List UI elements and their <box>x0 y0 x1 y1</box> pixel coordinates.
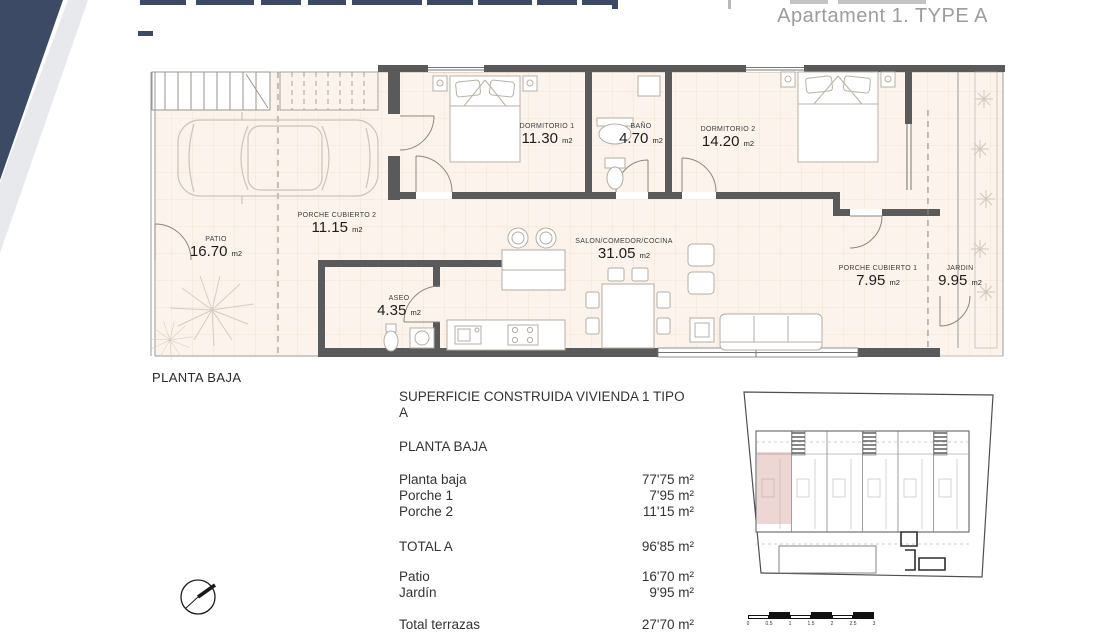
scale-label: 2.5 <box>850 621 857 627</box>
summary-row: Jardín9'95 m² <box>399 585 694 601</box>
terrace-rows: Patio16'70 m² Jardín9'95 m² <box>399 569 694 601</box>
summary-row: Planta baja77'75 m² <box>399 472 694 488</box>
plan-caption: PLANTA BAJA <box>152 370 241 385</box>
scale-segment <box>748 615 769 619</box>
scale-segment <box>769 612 790 619</box>
scale-label: 3 <box>873 621 876 627</box>
summary-rows: Planta baja77'75 m² Porche 17'95 m² Porc… <box>399 472 694 520</box>
floor-plan <box>150 64 1005 364</box>
summary-title: SUPERFICIE CONSTRUIDA VIVIENDA 1 TIPO A <box>399 389 694 421</box>
scale-segment <box>832 615 853 619</box>
summary-row: Porche 211'15 m² <box>399 504 694 520</box>
scale-segment <box>811 612 832 619</box>
summary-row: Patio16'70 m² <box>399 569 694 585</box>
surface-summary: SUPERFICIE CONSTRUIDA VIVIENDA 1 TIPO A … <box>399 389 694 633</box>
building-block <box>756 431 969 544</box>
pool-outline <box>779 546 876 573</box>
page-canvas: { "header": { "apartment_title": "Aparta… <box>0 0 1110 626</box>
site-plan <box>731 384 1033 584</box>
apartment-type-title: Apartament 1. TYPE A <box>700 5 988 28</box>
scale-label: 0 <box>747 621 750 627</box>
floor-plan-drawing <box>150 64 1005 364</box>
scale-label: 1.5 <box>808 621 815 627</box>
accent-dash <box>138 31 153 36</box>
scale-bar: 0 0.5 1 1.5 2 2.5 3 <box>748 610 882 626</box>
bed-dormitorio-2 <box>781 72 895 162</box>
north-arrow-icon <box>176 573 220 617</box>
terrace-total-row: Total terrazas27'70 m² <box>399 617 694 633</box>
stairs-drawing <box>152 72 270 110</box>
scale-label: 2 <box>831 621 834 627</box>
scale-label: 1 <box>789 621 792 627</box>
summary-section: PLANTA BAJA <box>399 439 694 455</box>
scale-segment <box>853 612 874 619</box>
scale-label: 0.5 <box>766 621 773 627</box>
carport-roof-slats <box>280 72 378 110</box>
scale-segment <box>790 615 811 619</box>
summary-row: Porche 17'95 m² <box>399 488 694 504</box>
summary-total-row: TOTAL A96'85 m² <box>399 539 694 555</box>
